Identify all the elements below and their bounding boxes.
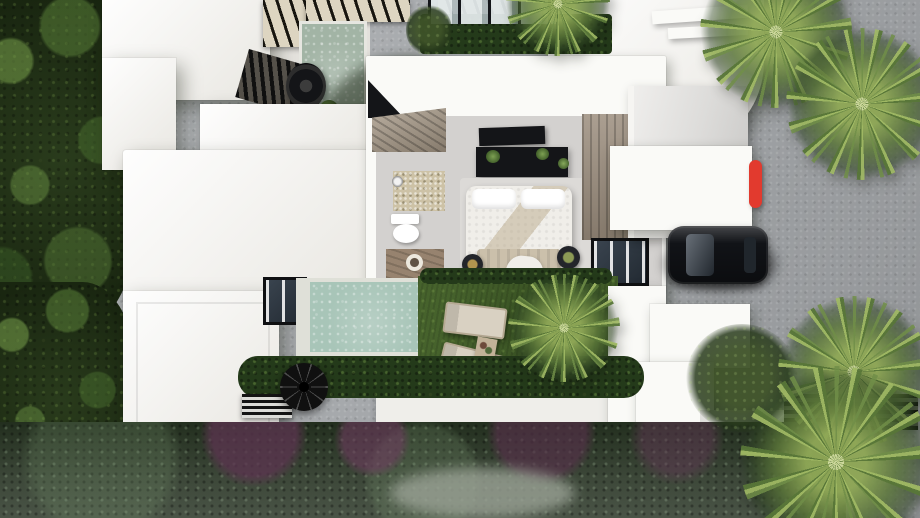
shower-head	[392, 176, 403, 187]
car-rear-glass	[744, 237, 756, 273]
hanging-egg-chair	[286, 63, 326, 109]
pale-ground-patch	[390, 468, 575, 518]
tv	[479, 126, 546, 146]
bed-pillow-right	[521, 189, 565, 209]
console-plant-right	[558, 158, 569, 169]
aerial-villa-render	[0, 0, 920, 518]
pergola-slats-b	[306, 0, 410, 22]
red-accent-door	[749, 160, 762, 208]
console-plant-mid	[536, 148, 549, 160]
bed-pillow-left	[472, 189, 516, 209]
nightstand-right	[557, 246, 580, 269]
toilet-bowl	[393, 224, 419, 243]
console-plant-left	[486, 150, 500, 163]
carport-wall-band	[610, 146, 752, 230]
spiral-staircase-center	[299, 382, 309, 392]
vanity-sink	[406, 254, 423, 271]
toilet-tank	[391, 214, 419, 224]
plant-top-small	[406, 4, 452, 56]
courtyard-pool	[310, 282, 422, 352]
palm-courtyard	[508, 274, 620, 382]
car-windshield	[686, 234, 714, 276]
